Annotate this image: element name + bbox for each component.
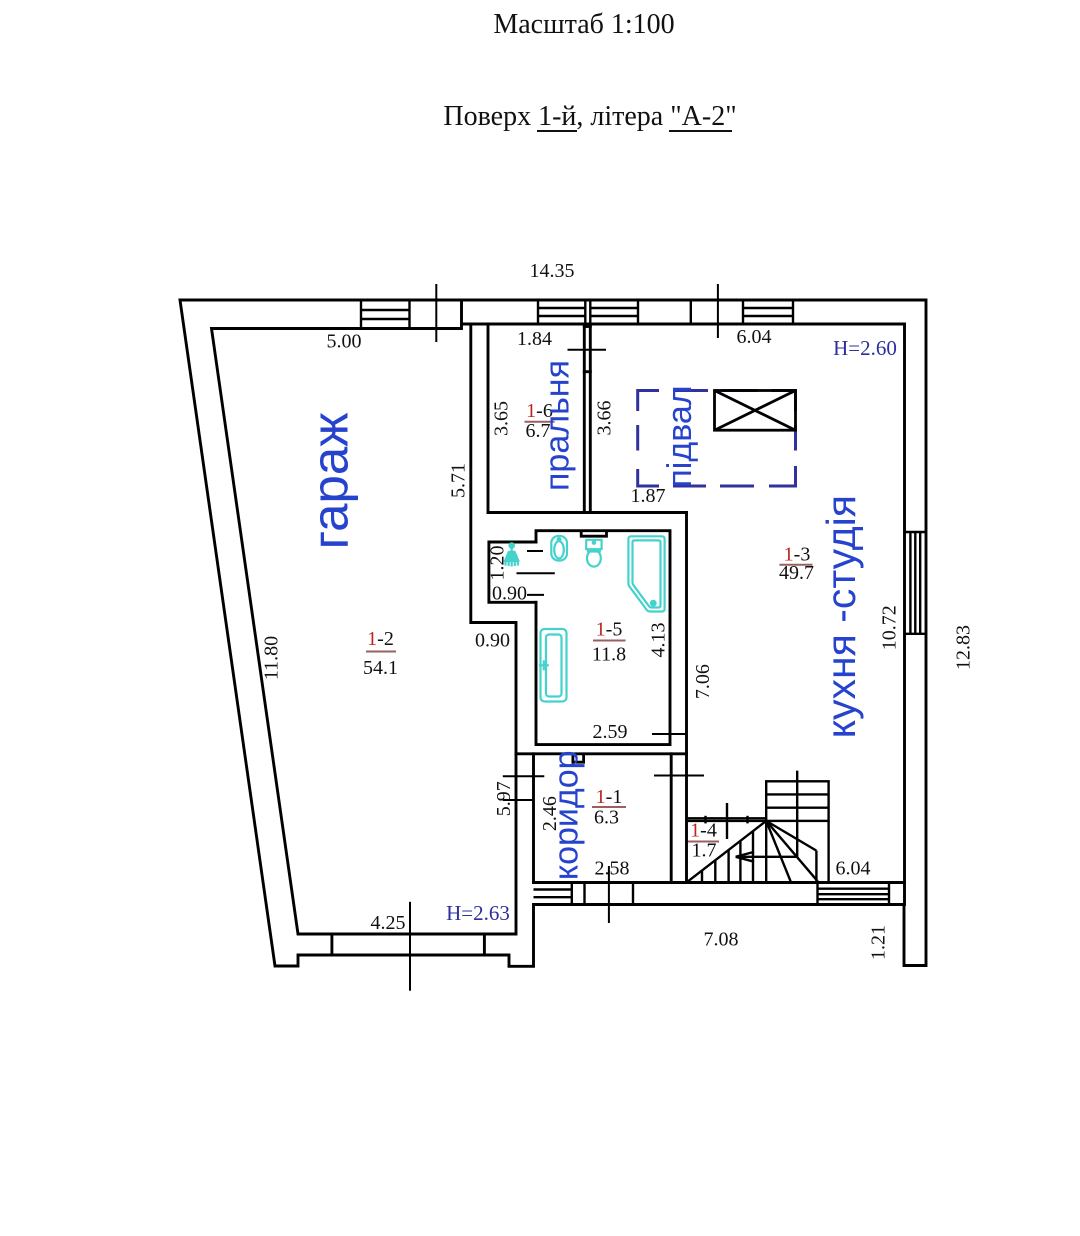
svg-text:Масштаб 1:100: Масштаб 1:100 (493, 9, 674, 40)
svg-text:1-1: 1-1 (596, 786, 623, 808)
svg-text:1-2: 1-2 (367, 628, 394, 650)
svg-text:4.13: 4.13 (648, 623, 670, 658)
svg-text:11.80: 11.80 (261, 636, 283, 680)
svg-text:Поверх 1-й, літера "А-2": Поверх 1-й, літера "А-2" (443, 101, 736, 132)
svg-text:0.90: 0.90 (492, 583, 527, 605)
svg-text:6.04: 6.04 (737, 326, 772, 348)
svg-text:2.58: 2.58 (595, 858, 630, 880)
svg-text:5.71: 5.71 (448, 463, 470, 498)
svg-text:пральня: пральня (539, 360, 577, 491)
svg-text:1-5: 1-5 (596, 619, 623, 641)
svg-text:14.35: 14.35 (530, 260, 575, 282)
svg-text:54.1: 54.1 (363, 657, 398, 679)
svg-text:0.90: 0.90 (475, 630, 510, 652)
svg-text:5.97: 5.97 (493, 781, 515, 816)
svg-text:7.08: 7.08 (704, 929, 739, 951)
svg-text:2.59: 2.59 (593, 721, 628, 743)
svg-text:коридор: коридор (547, 750, 585, 880)
svg-text:10.72: 10.72 (879, 605, 901, 650)
svg-text:4.25: 4.25 (371, 912, 406, 934)
svg-text:6.04: 6.04 (836, 858, 871, 880)
svg-text:гараж: гараж (302, 413, 359, 550)
svg-text:підвал: підвал (661, 385, 699, 487)
svg-text:6.3: 6.3 (594, 807, 619, 829)
svg-text:H=2.60: H=2.60 (833, 336, 897, 360)
svg-text:1.20: 1.20 (487, 546, 509, 581)
svg-text:3.65: 3.65 (491, 401, 513, 436)
svg-text:кухня -студія: кухня -студія (818, 495, 864, 738)
svg-text:12.83: 12.83 (953, 625, 975, 670)
svg-text:7.06: 7.06 (692, 664, 714, 699)
svg-text:11.8: 11.8 (592, 644, 626, 666)
svg-text:5.00: 5.00 (327, 331, 362, 353)
svg-text:H=2.63: H=2.63 (446, 901, 510, 925)
svg-text:1.7: 1.7 (692, 840, 717, 862)
svg-text:1-4: 1-4 (690, 820, 717, 842)
svg-text:1.21: 1.21 (868, 925, 890, 960)
svg-text:1.84: 1.84 (517, 328, 552, 350)
svg-text:3.66: 3.66 (594, 401, 616, 436)
